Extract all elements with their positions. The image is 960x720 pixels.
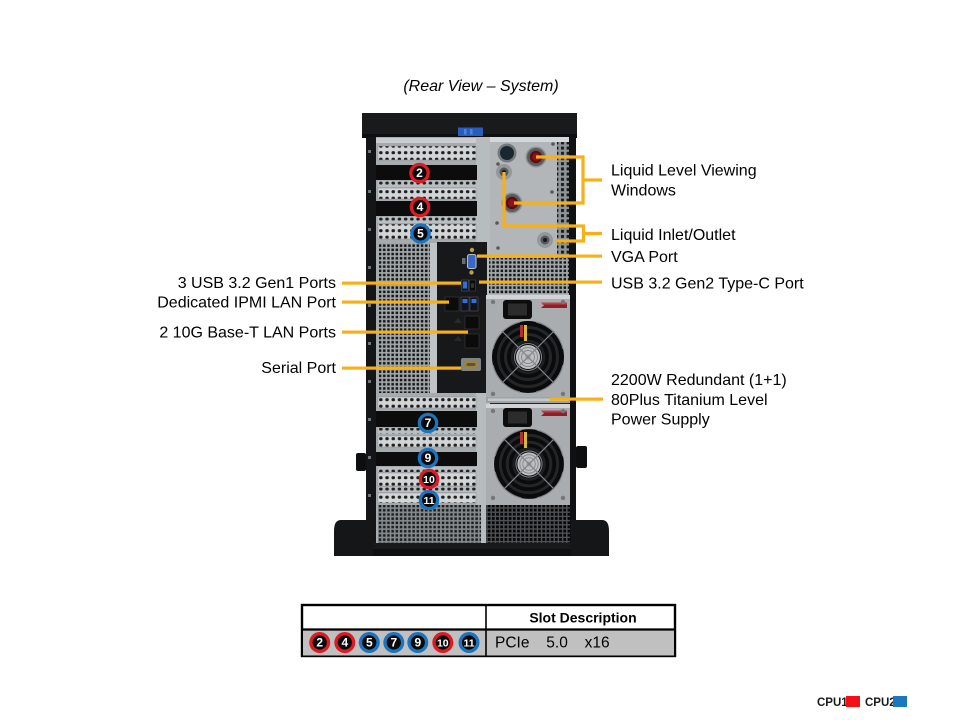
svg-text:Liquid Level Viewing: Liquid Level Viewing: [611, 163, 757, 180]
svg-text:(Rear View – System): (Rear View – System): [403, 78, 558, 95]
svg-text:10: 10: [423, 474, 435, 486]
svg-text:2: 2: [416, 166, 423, 180]
svg-text:5: 5: [366, 636, 373, 650]
svg-text:9: 9: [425, 451, 432, 465]
svg-text:PCIe 5.0 x16: PCIe 5.0 x16: [495, 635, 610, 652]
svg-text:11: 11: [423, 495, 434, 507]
svg-text:CPU1: CPU1: [817, 697, 848, 709]
svg-text:4: 4: [341, 636, 348, 650]
svg-text:Dedicated IPMI LAN Port: Dedicated IPMI LAN Port: [157, 295, 336, 312]
svg-text:Power Supply: Power Supply: [611, 412, 710, 429]
svg-text:3 USB 3.2 Gen1 Ports: 3 USB 3.2 Gen1 Ports: [178, 275, 336, 292]
svg-text:Liquid Inlet/Outlet: Liquid Inlet/Outlet: [611, 227, 736, 244]
svg-text:2: 2: [316, 636, 323, 650]
svg-text:VGA Port: VGA Port: [611, 249, 678, 266]
svg-text:Slot Description: Slot Description: [529, 610, 636, 626]
svg-text:5: 5: [417, 227, 424, 241]
svg-text:7: 7: [425, 416, 432, 430]
svg-text:9: 9: [414, 636, 421, 650]
svg-text:CPU2: CPU2: [865, 697, 896, 709]
svg-text:10: 10: [437, 638, 449, 650]
svg-text:USB 3.2 Gen2 Type-C Port: USB 3.2 Gen2 Type-C Port: [611, 276, 804, 293]
svg-text:11: 11: [463, 638, 474, 650]
svg-text:2200W Redundant (1+1): 2200W Redundant (1+1): [611, 372, 787, 389]
svg-text:4: 4: [417, 200, 424, 214]
svg-text:80Plus Titanium Level: 80Plus Titanium Level: [611, 392, 768, 409]
svg-text:2 10G Base-T LAN Ports: 2 10G Base-T LAN Ports: [159, 325, 336, 342]
svg-text:Windows: Windows: [611, 183, 676, 200]
svg-text:7: 7: [390, 636, 397, 650]
svg-text:Serial Port: Serial Port: [261, 360, 336, 377]
